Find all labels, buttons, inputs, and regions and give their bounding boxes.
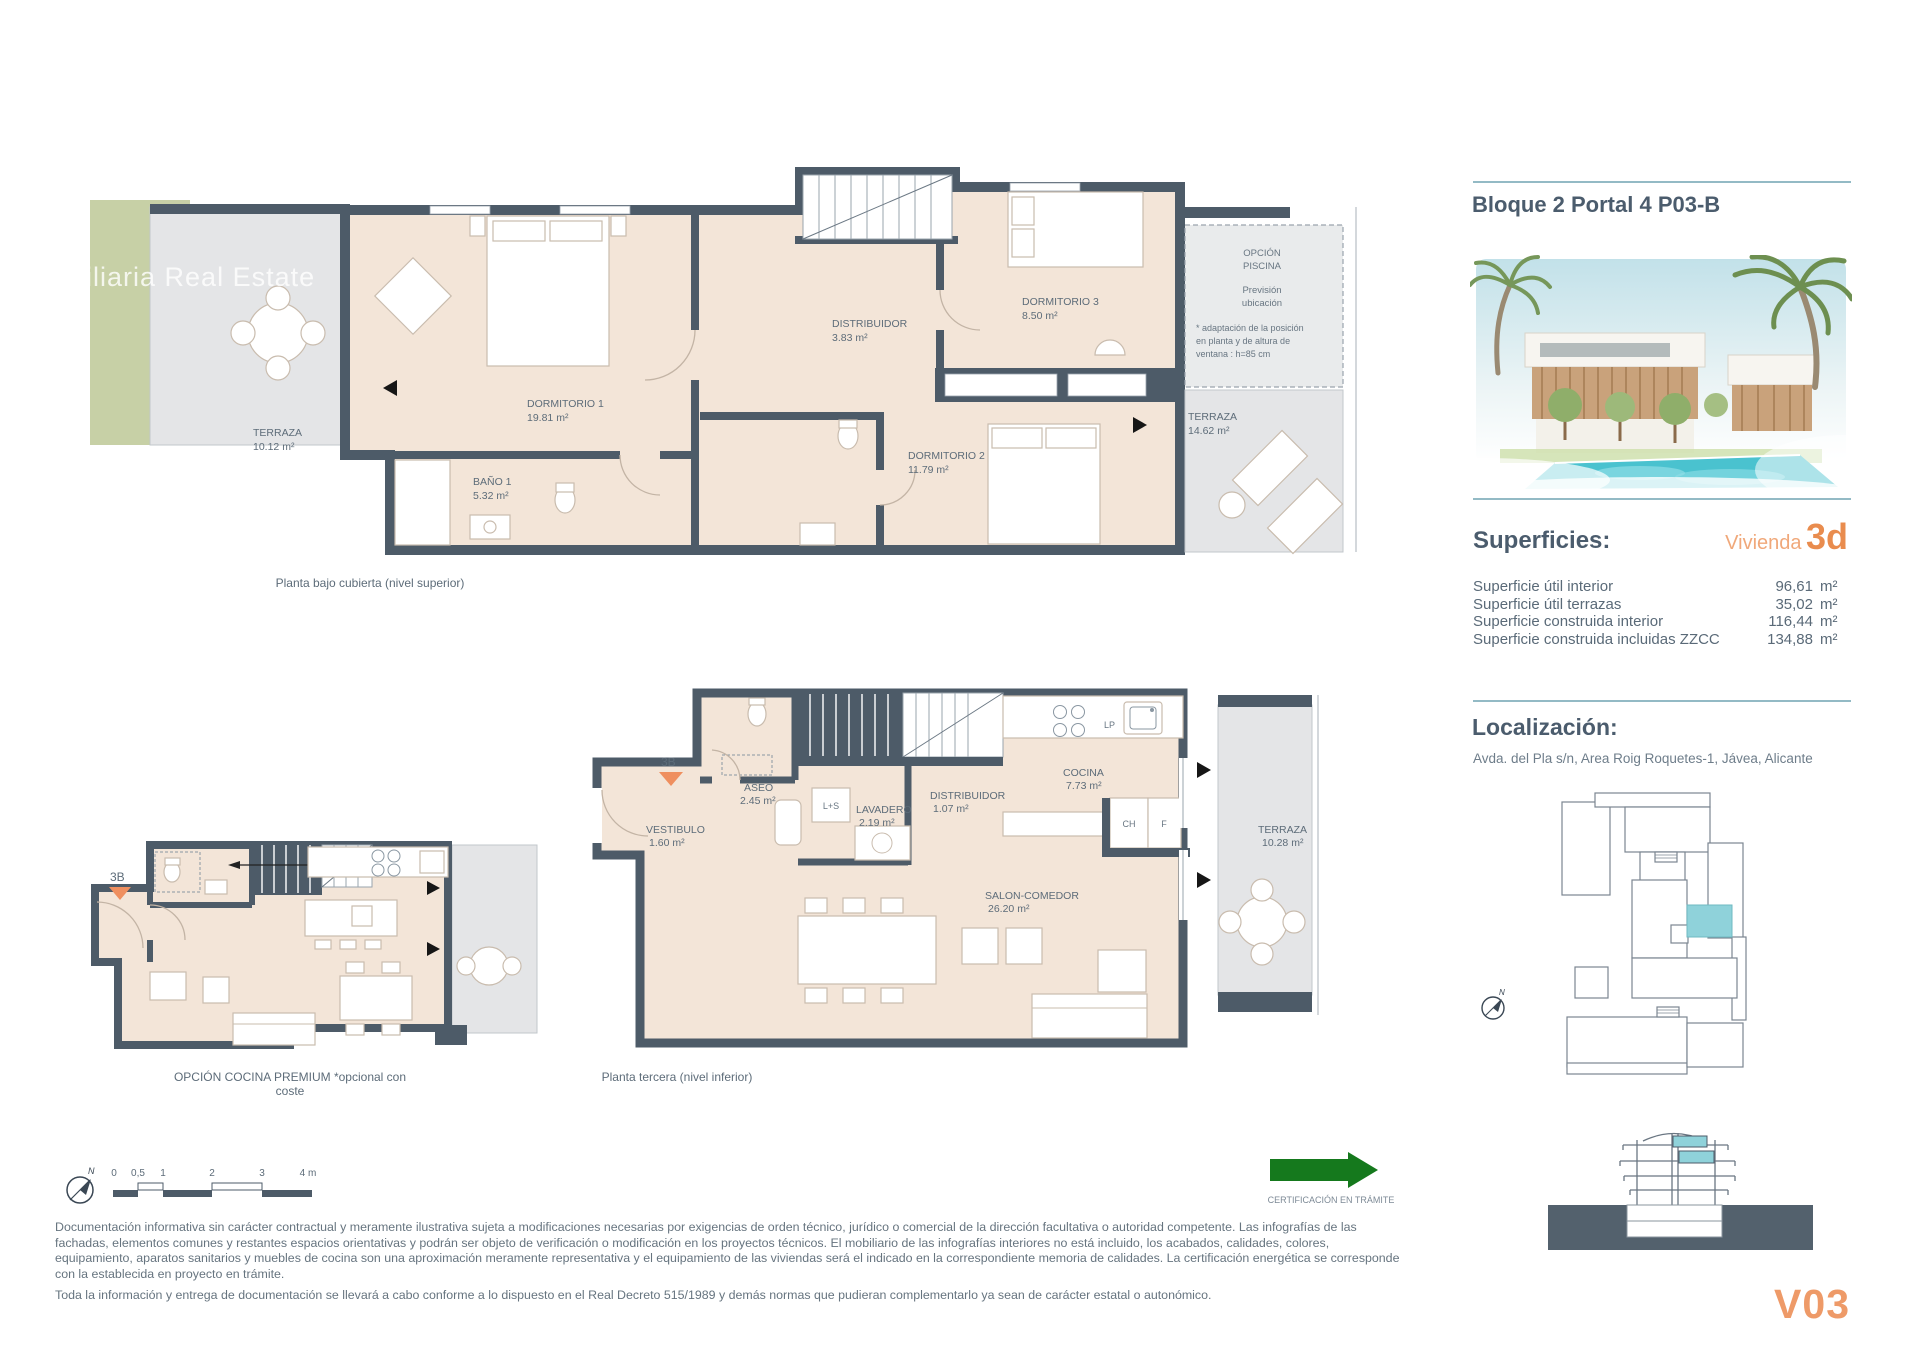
unit-code: V03 (1718, 1281, 1850, 1328)
pool-option-note: Previsión (1242, 285, 1281, 296)
row-value: 116,44 (1757, 613, 1813, 631)
arrow-right-icon (1197, 762, 1211, 778)
window (1068, 374, 1146, 396)
room-area: 7.73 m² (1066, 780, 1102, 792)
scale-tick: 4 m (300, 1168, 317, 1179)
compass-icon: N (67, 1166, 95, 1203)
room-label: TERRAZA (1188, 411, 1237, 423)
staircase (803, 175, 952, 239)
table-row: Superficie construida interior 116,44 m² (1473, 613, 1846, 631)
unit-marker: 3B (110, 870, 125, 884)
room-area: 11.79 m² (908, 464, 949, 476)
superficies-header: Superficies: Vivienda 3d (1473, 522, 1848, 555)
unit-marker: 3B (661, 755, 676, 769)
room-label: DISTRIBUIDOR (930, 790, 1006, 802)
room-label: DORMITORIO 1 (527, 398, 604, 410)
table-row: Superficie útil interior 96,61 m² (1473, 578, 1846, 596)
row-value: 35,02 (1757, 596, 1813, 614)
pool-option-note: en planta y de altura de (1196, 336, 1290, 346)
certification-badge: CERTIFICACIÓN EN TRÁMITE (1255, 1147, 1425, 1209)
room-area: 19.81 m² (527, 412, 569, 424)
scale-labels: 0 0,5 1 2 3 4 m (111, 1168, 316, 1179)
row-label: Superficie construida interior (1473, 613, 1757, 631)
row-unit: m² (1813, 578, 1846, 596)
upper-plan-caption: Planta bajo cubierta (nivel superior) (245, 576, 495, 590)
scale-tick: 2 (209, 1168, 215, 1179)
energy-arrow-icon (1270, 1159, 1348, 1181)
room-area: 2.19 m² (859, 817, 895, 829)
divider (1473, 700, 1851, 702)
page-title: Bloque 2 Portal 4 P03-B (1472, 192, 1720, 218)
scale-tick: 0 (111, 1168, 117, 1179)
watermark: biliaria Real Estate (70, 262, 315, 293)
room-label: BAÑO 1 (473, 475, 512, 488)
vivienda-label: Vivienda (1725, 532, 1801, 554)
room-label: ASEO (744, 782, 773, 794)
vivienda-code: 3d (1806, 516, 1848, 557)
room-label: DORMITORIO 2 (908, 450, 985, 462)
room-area: 1.60 m² (649, 837, 685, 849)
pool-option-note: ubicación (1242, 298, 1282, 309)
room-area: 26.20 m² (988, 903, 1030, 915)
pool-option-label: OPCIÓN (1243, 248, 1281, 259)
certification-label: CERTIFICACIÓN EN TRÁMITE (1268, 1195, 1395, 1205)
scale-tick: 3 (259, 1168, 265, 1179)
window (430, 206, 490, 214)
row-label: Superficie útil terrazas (1473, 596, 1757, 614)
row-label: Superficie construida incluidas ZZCC (1473, 631, 1757, 649)
disclaimer-paragraph: Documentación informativa sin carácter c… (55, 1220, 1400, 1282)
north-label: N (1499, 988, 1505, 997)
table-row: Superficie construida incluidas ZZCC 134… (1473, 631, 1846, 649)
appliance-label: L+S (823, 801, 839, 811)
row-unit: m² (1813, 596, 1846, 614)
door-gap (592, 788, 602, 843)
row-unit: m² (1813, 631, 1846, 649)
wall (435, 1025, 467, 1045)
room-label: COCINA (1063, 767, 1104, 779)
room-label: DISTRIBUIDOR (832, 318, 908, 330)
divider (1473, 498, 1851, 500)
terrace (452, 845, 537, 1033)
room-area: 10.12 m² (253, 441, 295, 453)
north-label: N (88, 1166, 95, 1176)
room-label: TERRAZA (253, 427, 302, 439)
room-area: 2.45 m² (740, 795, 776, 807)
divider (1473, 181, 1851, 183)
superficies-table: Superficie útil interior 96,61 m² Superf… (1473, 578, 1846, 648)
address: Avda. del Pla s/n, Area Roig Roquetes-1,… (1473, 751, 1813, 766)
highlighted-level (1673, 1136, 1707, 1147)
building-section (1540, 1125, 1820, 1260)
room-area: 5.32 m² (473, 490, 509, 502)
appliance-label: CH (1123, 819, 1136, 829)
disclaimer-paragraph: Toda la información y entrega de documen… (55, 1288, 1400, 1304)
scale-bar: N 0 0,5 1 2 3 4 m (55, 1155, 335, 1210)
lower-plan-caption: Planta tercera (nivel inferior) (592, 1070, 762, 1084)
room-area: 3.83 m² (832, 332, 868, 344)
scale-segments (113, 1183, 312, 1197)
appliance-label: F (1161, 819, 1167, 829)
room-label: LAVADERO (856, 804, 912, 816)
building-render (1470, 255, 1852, 490)
room-area: 14.62 m² (1188, 425, 1230, 437)
scale-tick: 0,5 (131, 1168, 145, 1179)
row-value: 134,88 (1757, 631, 1813, 649)
wall (1105, 848, 1190, 857)
premium-kitchen-plan: 3B (80, 838, 555, 1068)
pool-option-note: * adaptación de la posición (1196, 323, 1304, 333)
room-area: 8.50 m² (1022, 310, 1058, 322)
highlighted-level (1679, 1151, 1714, 1163)
window (560, 206, 630, 214)
row-unit: m² (1813, 613, 1846, 631)
room-area: 10.28 m² (1262, 837, 1304, 849)
row-value: 96,61 (1757, 578, 1813, 596)
pool-option-label: PISCINA (1243, 261, 1282, 272)
highlighted-unit (1687, 905, 1732, 937)
window (945, 374, 1057, 396)
arrow-right-icon (1197, 872, 1211, 888)
staircase (798, 690, 1003, 766)
wall (1218, 992, 1312, 1012)
upper-floor-plan: TERRAZA 10.12 m² DORMITORIO 1 19.81 m² B… (75, 155, 1375, 575)
wall (1180, 207, 1290, 218)
room-label: TERRAZA (1258, 824, 1307, 836)
plan-sheet: TERRAZA 10.12 m² DORMITORIO 1 19.81 m² B… (0, 0, 1920, 1357)
scale-tick: 1 (160, 1168, 166, 1179)
pool-option-note: ventana : h=85 cm (1196, 349, 1270, 359)
wall (150, 204, 350, 214)
appliance-label: LP (1104, 720, 1115, 730)
superficies-heading: Superficies: (1473, 527, 1610, 555)
row-label: Superficie útil interior (1473, 578, 1757, 596)
window (1010, 183, 1080, 191)
wall (1218, 695, 1312, 707)
table-row: Superficie útil terrazas 35,02 m² (1473, 596, 1846, 614)
room-label: SALON-COMEDOR (985, 890, 1079, 902)
key-plan: N (1475, 790, 1855, 1100)
compass-icon: N (1482, 988, 1505, 1019)
room-label: DORMITORIO 3 (1022, 296, 1099, 308)
localizacion-heading: Localización: (1472, 714, 1618, 741)
premium-plan-caption: OPCIÓN COCINA PREMIUM *opcional con cost… (165, 1070, 415, 1098)
energy-arrow-tip-icon (1348, 1152, 1378, 1188)
room-label: VESTIBULO (646, 824, 705, 836)
lower-floor-plan: 3B VESTIBULO 1.60 m² ASEO 2.45 m² L+S LA… (560, 685, 1350, 1065)
room-area: 1.07 m² (933, 803, 969, 815)
